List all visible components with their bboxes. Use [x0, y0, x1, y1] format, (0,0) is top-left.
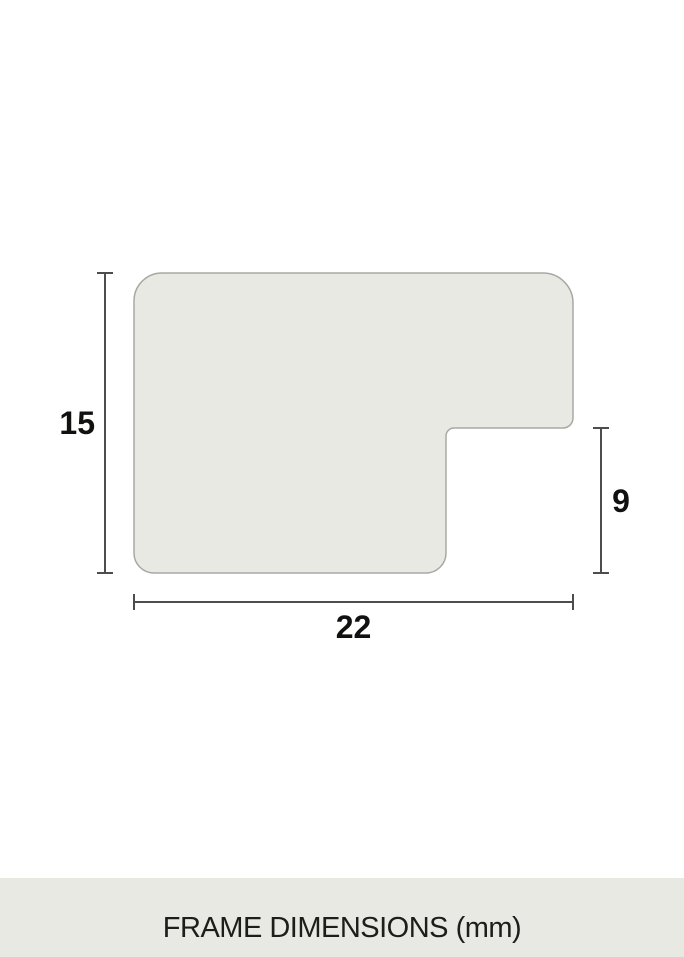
height-dimension-label: 15 [35, 406, 95, 440]
caption-text: FRAME DIMENSIONS (mm) [163, 914, 521, 943]
frame-profile-shape [134, 273, 573, 573]
caption-band: FRAME DIMENSIONS (mm) [0, 878, 684, 957]
frame-dimensions-diagram: 15 22 9 FRAME DIMENSIONS (mm) [0, 0, 684, 957]
notch-dimension-label: 9 [601, 484, 641, 518]
moulding-profile-drawing [0, 0, 684, 957]
height-dimension-line [97, 273, 113, 573]
width-dimension-label: 22 [323, 610, 384, 644]
width-dimension-line [134, 594, 573, 610]
